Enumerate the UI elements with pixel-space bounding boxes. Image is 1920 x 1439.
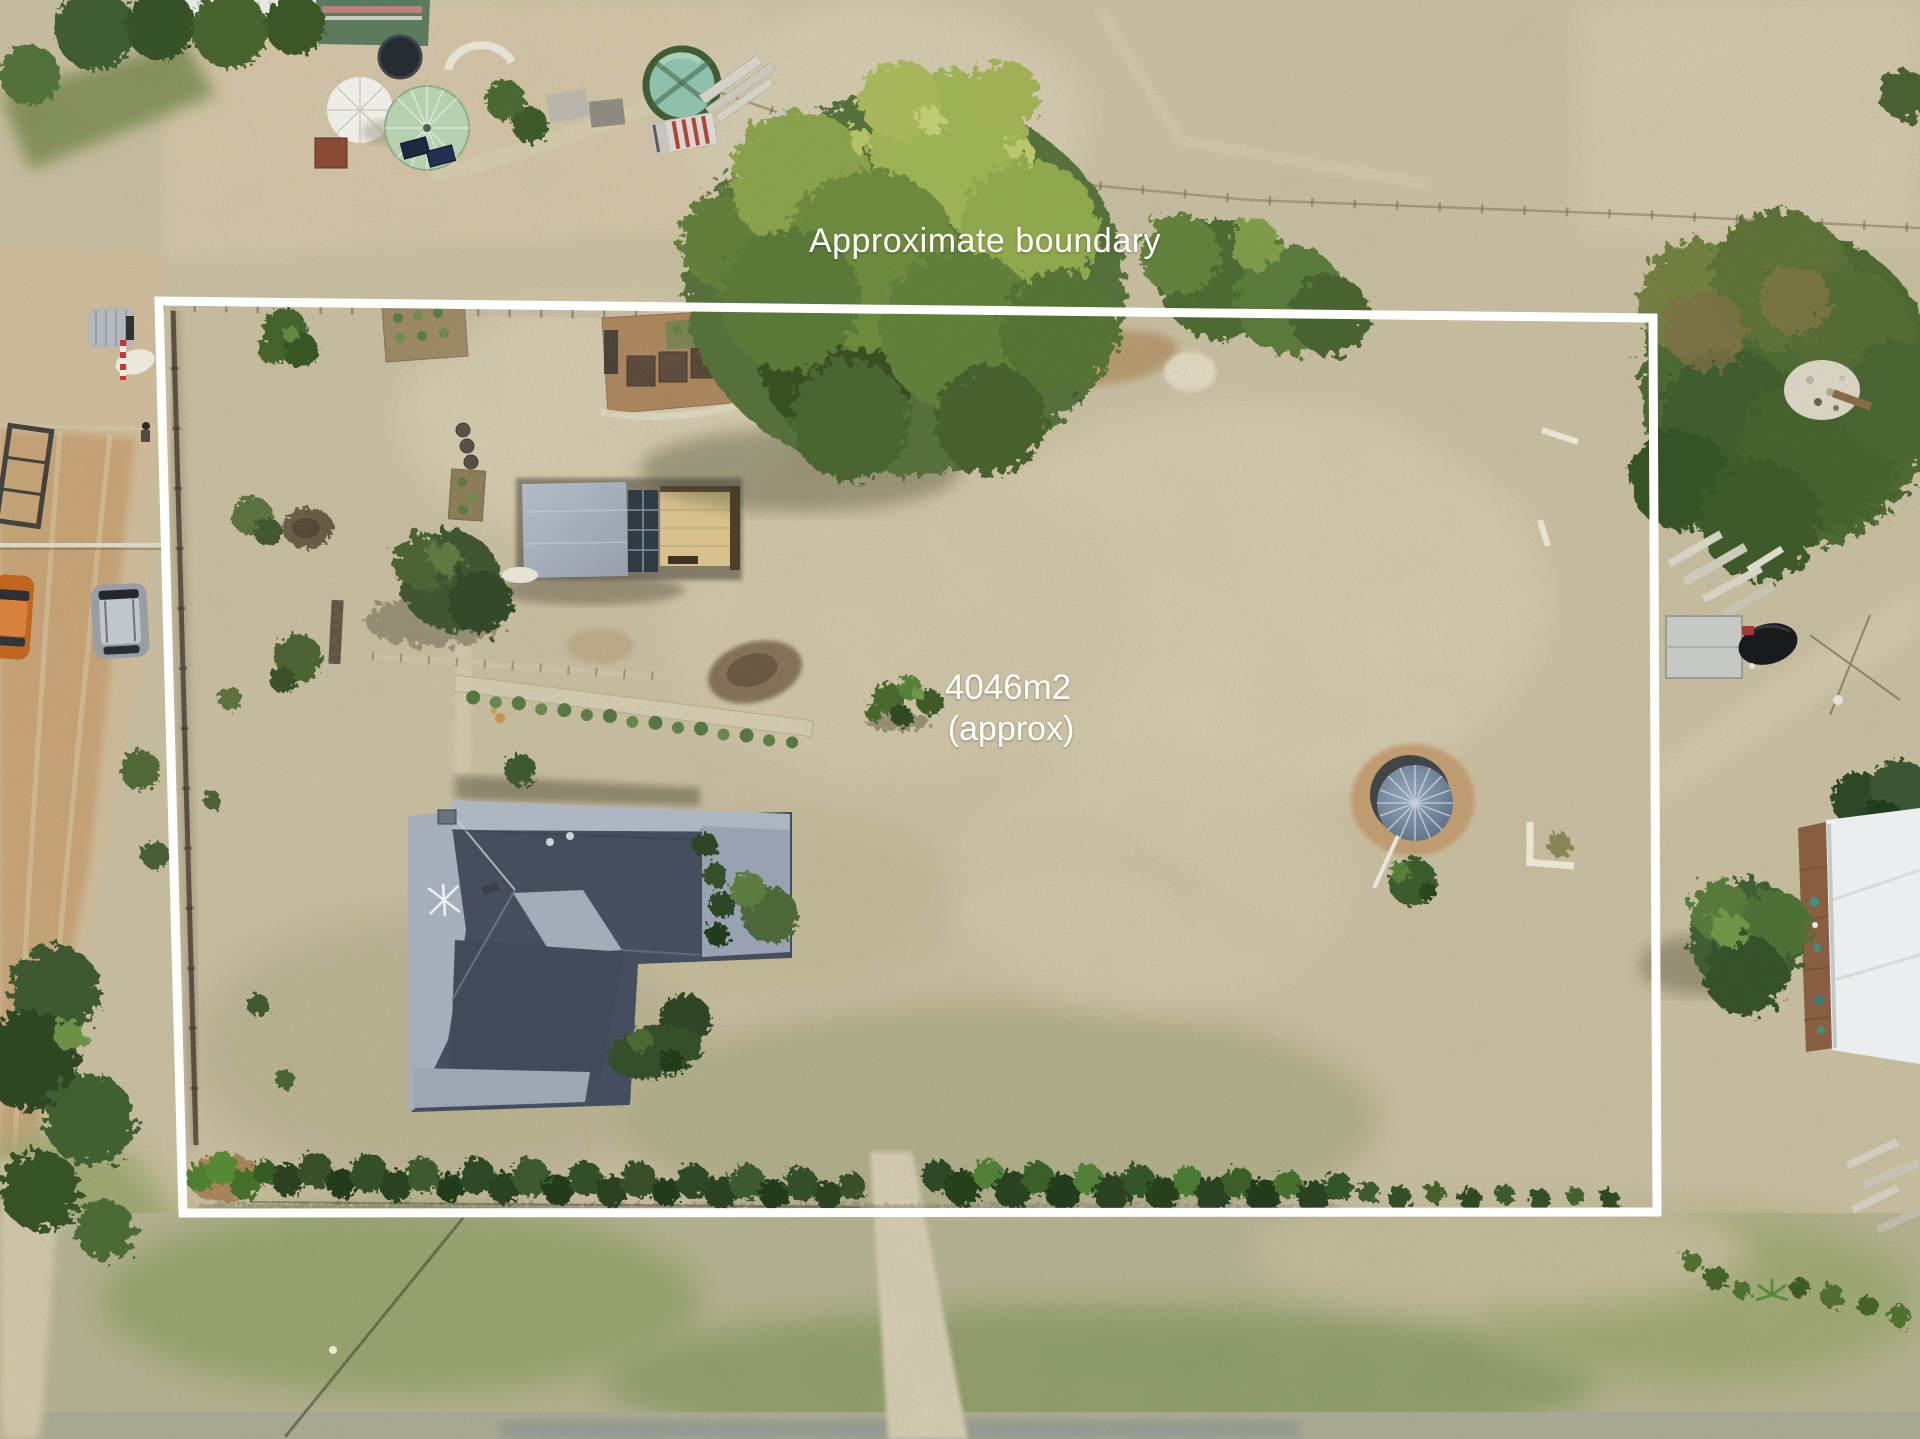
area-label-qualifier: (approx) [948,710,1075,748]
aerial-photo-viewport: Approximate boundary 4046m2 (approx) [0,0,1920,1439]
area-label-value: 4046m2 [945,668,1071,707]
aerial-photo: Approximate boundary 4046m2 (approx) [0,0,1920,1439]
boundary-label: Approximate boundary [809,222,1161,260]
